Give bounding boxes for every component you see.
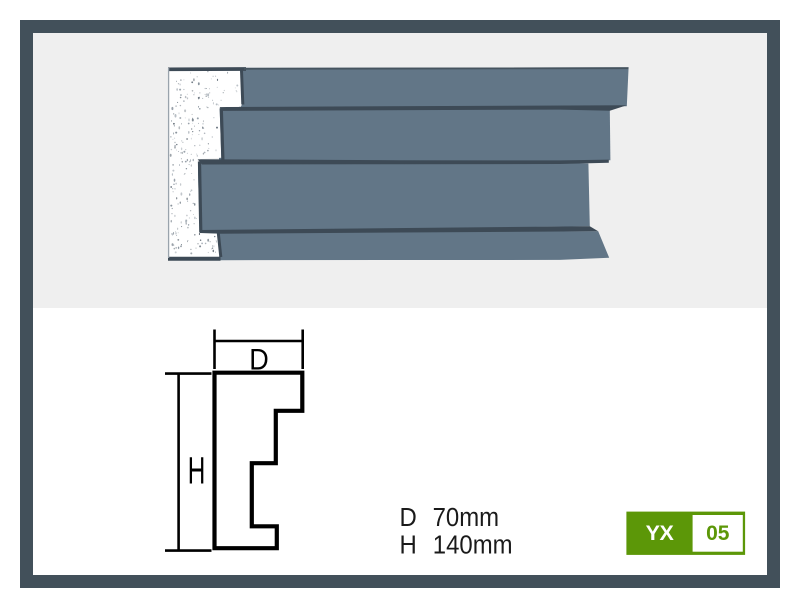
svg-text:D: D	[400, 503, 417, 532]
svg-text:H: H	[188, 449, 206, 492]
svg-text:05: 05	[706, 522, 730, 545]
svg-text:H: H	[400, 531, 417, 560]
svg-text:YX: YX	[646, 521, 675, 545]
svg-text:140mm: 140mm	[433, 531, 513, 560]
svg-text:70mm: 70mm	[433, 503, 499, 532]
